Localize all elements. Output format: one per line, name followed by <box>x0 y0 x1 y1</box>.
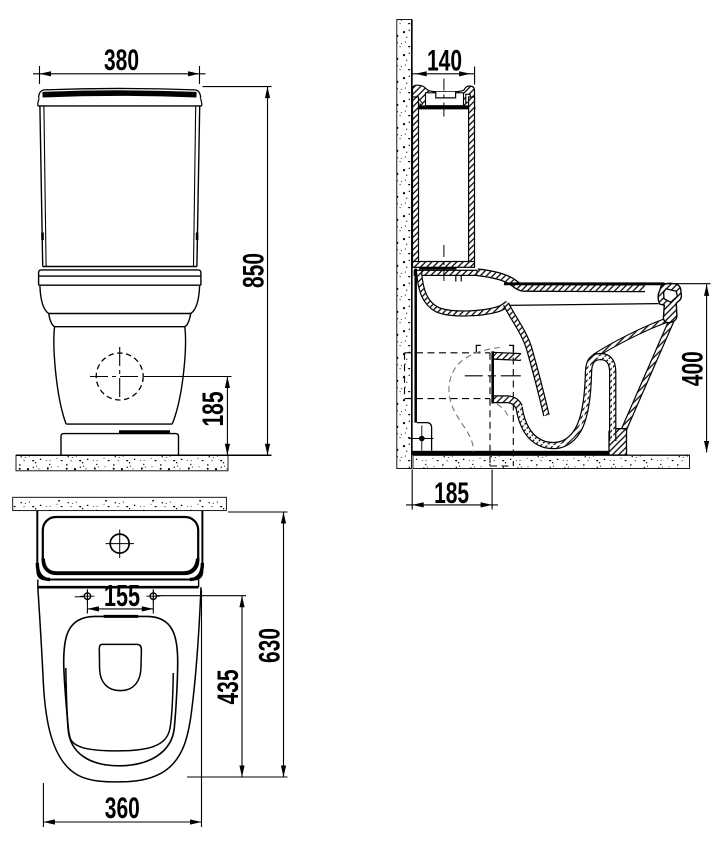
svg-text:360: 360 <box>105 792 140 825</box>
svg-text:850: 850 <box>237 253 270 288</box>
svg-text:400: 400 <box>677 351 710 386</box>
svg-text:140: 140 <box>427 45 462 78</box>
svg-text:155: 155 <box>104 578 140 613</box>
svg-text:185: 185 <box>197 392 230 427</box>
svg-text:630: 630 <box>253 628 286 663</box>
svg-text:435: 435 <box>212 670 245 705</box>
svg-text:185: 185 <box>434 477 469 510</box>
svg-text:380: 380 <box>104 44 139 77</box>
